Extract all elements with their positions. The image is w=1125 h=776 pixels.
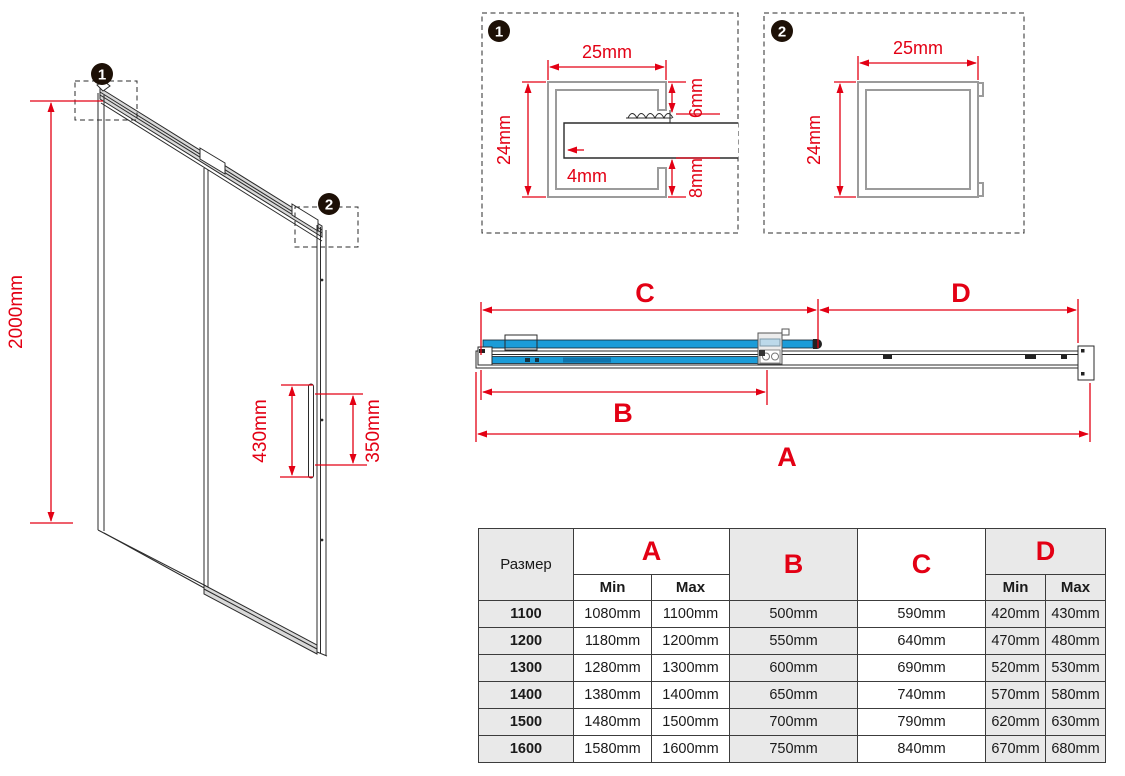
plan-view-drawing: C D B A — [465, 275, 1125, 475]
col-b-header: B — [730, 529, 858, 601]
handle-height-dimension: 430mm — [250, 385, 313, 477]
height-dimension: 24mm — [804, 82, 856, 197]
d-max-cell: 580mm — [1046, 682, 1106, 709]
bottom-rail — [204, 585, 317, 654]
right-wall-profile — [1078, 346, 1094, 380]
size-cell: 1200 — [479, 628, 574, 655]
right-wall-profile — [317, 225, 327, 656]
shower-door-spec-sheet: 1 2 2000mm 430mm 350mm — [0, 0, 1125, 776]
c-cell: 740mm — [858, 682, 986, 709]
sliding-glass-in-track — [480, 357, 774, 364]
dimension-d: D — [820, 278, 1078, 343]
col-a-header: A — [574, 529, 730, 575]
c-cell: 690mm — [858, 655, 986, 682]
size-header-cell: Размер — [479, 529, 574, 601]
height-label: 2000mm — [6, 275, 27, 349]
glass-panels — [98, 93, 208, 589]
wall-thickness-label: 4mm — [567, 166, 607, 186]
bottom-gap-label: 8mm — [686, 158, 706, 198]
a-max-cell: 1600mm — [652, 736, 730, 763]
c-cell: 590mm — [858, 601, 986, 628]
table-row: 1400 1380mm 1400mm 650mm 740mm 570mm 580… — [479, 682, 1106, 709]
height-label: 24mm — [494, 115, 514, 165]
left-wall-bracket — [478, 347, 492, 365]
size-cell: 1600 — [479, 736, 574, 763]
a-min-cell: 1080mm — [574, 601, 652, 628]
width-dimension: 25mm — [858, 38, 978, 80]
a-min-cell: 1380mm — [574, 682, 652, 709]
a-max-cell: 1300mm — [652, 655, 730, 682]
handle-offset-dimension: 350mm — [315, 394, 384, 465]
d-min-cell: 620mm — [986, 709, 1046, 736]
table-row: 1600 1580mm 1600mm 750mm 840mm 670mm 680… — [479, 736, 1106, 763]
height-dimension: 24mm — [494, 82, 546, 197]
col-c-header: C — [858, 529, 986, 601]
d-min-cell: 520mm — [986, 655, 1046, 682]
square-profile — [858, 82, 983, 197]
d-min-cell: 420mm — [986, 601, 1046, 628]
table-header-row: Размер A B C D — [479, 529, 1106, 575]
b-cell: 650mm — [730, 682, 858, 709]
height-dimension: 2000mm — [6, 101, 103, 523]
table-row: 1300 1280mm 1300mm 600mm 690mm 520mm 530… — [479, 655, 1106, 682]
top-gap-dimension: 6mm — [668, 78, 720, 118]
callout-number: 1 — [495, 24, 503, 41]
detail-1-profile-section: 1 25mm 24mm — [480, 10, 742, 238]
callout-2-badge: 2 — [318, 193, 340, 215]
size-cell: 1100 — [479, 601, 574, 628]
table-row: 1100 1080mm 1100mm 500mm 590mm 420mm 430… — [479, 601, 1106, 628]
size-table: Размер A B C D Min Max Min Max 1100 1080… — [478, 528, 1106, 763]
d-max-cell: 430mm — [1046, 601, 1106, 628]
a-max-header: Max — [652, 575, 730, 601]
a-max-cell: 1400mm — [652, 682, 730, 709]
d-max-cell: 530mm — [1046, 655, 1106, 682]
handle-height-label: 430mm — [250, 399, 271, 462]
d-max-cell: 630mm — [1046, 709, 1106, 736]
table-row: 1200 1180mm 1200mm 550mm 640mm 470mm 480… — [479, 628, 1106, 655]
a-min-header: Min — [574, 575, 652, 601]
gasket-seal — [626, 110, 673, 123]
height-label: 24mm — [804, 115, 824, 165]
size-cell: 1500 — [479, 709, 574, 736]
dim-b-label: B — [613, 398, 633, 428]
d-max-cell: 480mm — [1046, 628, 1106, 655]
b-cell: 700mm — [730, 709, 858, 736]
callout-1-badge: 1 — [488, 20, 510, 42]
d-min-cell: 670mm — [986, 736, 1046, 763]
b-cell: 600mm — [730, 655, 858, 682]
dim-a-label: A — [777, 442, 797, 472]
d-max-header: Max — [1046, 575, 1106, 601]
a-min-cell: 1280mm — [574, 655, 652, 682]
isometric-door-drawing: 1 2 2000mm 430mm 350mm — [0, 40, 450, 740]
callout-2-badge: 2 — [771, 20, 793, 42]
dimension-b: B — [481, 370, 767, 428]
c-cell: 790mm — [858, 709, 986, 736]
b-cell: 750mm — [730, 736, 858, 763]
a-min-cell: 1480mm — [574, 709, 652, 736]
d-min-cell: 570mm — [986, 682, 1046, 709]
handle-offset-label: 350mm — [363, 399, 384, 462]
dimension-a: A — [476, 372, 1090, 472]
callout-1-number: 1 — [98, 67, 106, 84]
width-label: 25mm — [893, 38, 943, 58]
a-max-cell: 1500mm — [652, 709, 730, 736]
size-cell: 1300 — [479, 655, 574, 682]
c-cell: 840mm — [858, 736, 986, 763]
d-min-cell: 470mm — [986, 628, 1046, 655]
table-row: 1500 1480mm 1500mm 700mm 790mm 620mm 630… — [479, 709, 1106, 736]
callout-2-number: 2 — [325, 197, 333, 214]
callout-1-badge: 1 — [91, 63, 113, 85]
top-gap-label: 6mm — [686, 78, 706, 118]
glass-panel — [564, 123, 738, 158]
c-cell: 640mm — [858, 628, 986, 655]
b-cell: 500mm — [730, 601, 858, 628]
b-cell: 550mm — [730, 628, 858, 655]
callout-number: 2 — [778, 24, 786, 41]
top-rail — [97, 81, 322, 241]
a-max-cell: 1200mm — [652, 628, 730, 655]
col-d-header: D — [986, 529, 1106, 575]
door-handle — [309, 384, 314, 478]
detail-2-profile-section: 2 25mm 24mm — [762, 10, 1028, 238]
width-label: 25mm — [582, 42, 632, 62]
panel-bracket — [505, 335, 537, 350]
a-min-cell: 1180mm — [574, 628, 652, 655]
dim-d-label: D — [951, 278, 971, 308]
d-max-cell: 680mm — [1046, 736, 1106, 763]
dim-c-label: C — [635, 278, 655, 308]
size-cell: 1400 — [479, 682, 574, 709]
d-min-header: Min — [986, 575, 1046, 601]
a-min-cell: 1580mm — [574, 736, 652, 763]
width-dimension: 25mm — [548, 42, 666, 80]
a-max-cell: 1100mm — [652, 601, 730, 628]
bottom-gap-dimension: 8mm — [668, 158, 720, 198]
